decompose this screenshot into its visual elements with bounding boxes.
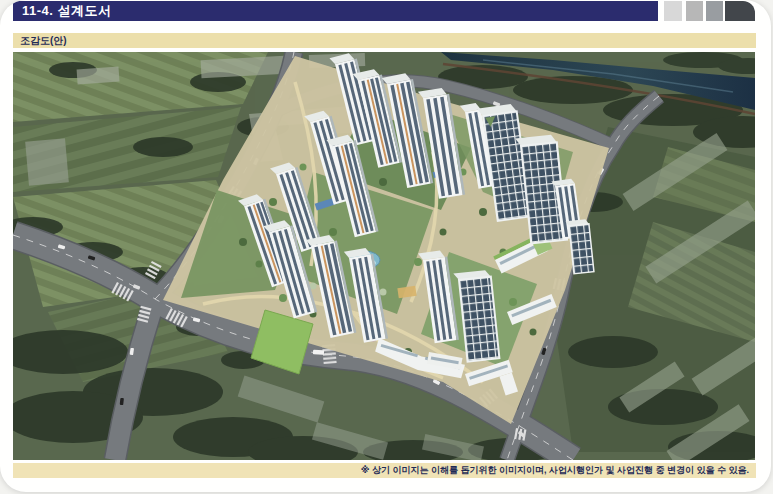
header-decor-square-3 — [706, 1, 723, 21]
aerial-rendering — [13, 52, 755, 460]
section-label: 조감도(안) — [13, 33, 756, 48]
header-decor-square-4 — [725, 1, 755, 21]
slide-card: 11-4. 설계도서 조감도(안) — [0, 0, 771, 492]
disclaimer-footnote: ※ 상기 이미지는 이해를 돕기위한 이미지이며, 사업시행인가 및 사업진행 … — [13, 463, 756, 478]
aerial-rendering-frame — [13, 52, 755, 460]
header-decor-square-2 — [686, 1, 703, 21]
page-title: 11-4. 설계도서 — [13, 1, 658, 21]
header-decor-square-1 — [664, 1, 682, 21]
